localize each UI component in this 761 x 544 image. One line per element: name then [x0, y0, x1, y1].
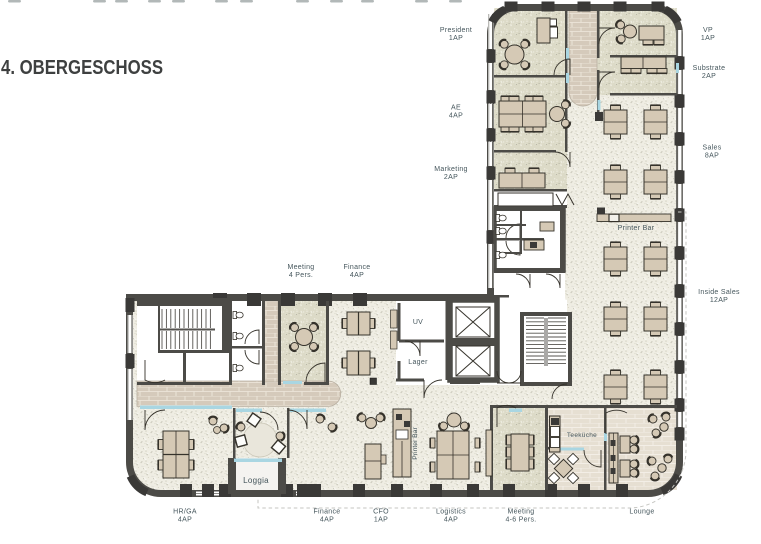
svg-text:Printer Bar: Printer Bar — [618, 225, 655, 232]
svg-text:Meeting4 Pers.: Meeting4 Pers. — [287, 264, 314, 279]
svg-text:UV: UV — [413, 319, 423, 326]
svg-text:Loggia: Loggia — [243, 476, 269, 485]
svg-text:VP1AP: VP1AP — [701, 27, 715, 42]
svg-text:Teeküche: Teeküche — [567, 432, 597, 439]
svg-text:Lager: Lager — [408, 359, 428, 366]
svg-text:Printer Bar: Printer Bar — [412, 427, 419, 460]
svg-text:AE4AP: AE4AP — [449, 105, 463, 120]
svg-text:4. OBERGESCHOSS: 4. OBERGESCHOSS — [1, 57, 163, 79]
svg-text:Lounge: Lounge — [629, 509, 654, 516]
svg-text:Meeting4-6 Pers.: Meeting4-6 Pers. — [505, 509, 536, 524]
svg-text:CFO1AP: CFO1AP — [373, 509, 389, 524]
svg-text:Sales8AP: Sales8AP — [702, 145, 721, 160]
